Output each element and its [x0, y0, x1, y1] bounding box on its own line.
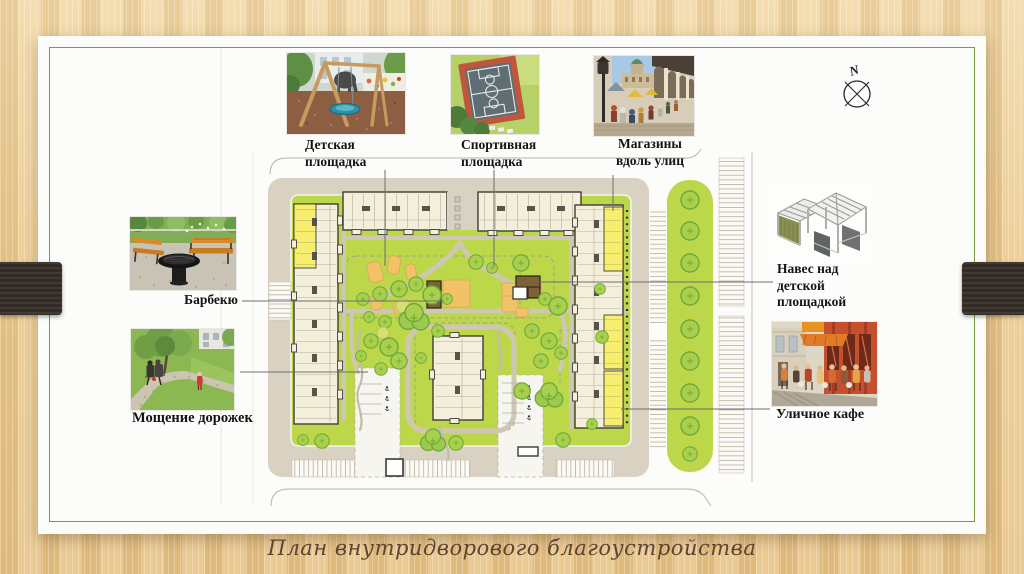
- shops-label: Магазины вдоль улиц: [604, 136, 696, 169]
- slide-caption: План внутридворового благоустройства: [0, 536, 1024, 560]
- street-cafe-photo: [772, 322, 877, 406]
- barbecue-photo: [130, 217, 236, 290]
- playground-photo: [287, 53, 405, 134]
- bbq-label: Барбекю: [184, 292, 238, 309]
- presentation-photo-background: { "caption": "План внутридворового благо…: [0, 0, 1024, 574]
- left-holder-tab: [0, 262, 62, 315]
- playground-label: Детская площадка: [305, 137, 366, 170]
- cafe-label: Уличное кафе: [776, 406, 864, 423]
- basketball-court: [458, 55, 525, 127]
- barbecue-illustration: [130, 217, 236, 290]
- canopy-structure-drawing: [770, 183, 870, 270]
- cafe-illustration: [772, 322, 877, 406]
- paving-illustration: [131, 329, 234, 410]
- right-holder-tab: [962, 262, 1024, 315]
- street-arcade-photo: [594, 56, 694, 136]
- sport-court-photo: [451, 55, 539, 134]
- sport-court-illustration: [451, 55, 539, 134]
- canopy-illustration: [770, 183, 870, 265]
- path-paving-photo: [131, 329, 234, 410]
- arcade-illustration: [594, 56, 694, 136]
- canopy-label: Навес над детской площадкой: [777, 261, 846, 311]
- playground-illustration: [287, 53, 405, 134]
- paving-label: Мощение дорожек: [132, 410, 253, 428]
- sport-label: Спортивная площадка: [461, 137, 536, 170]
